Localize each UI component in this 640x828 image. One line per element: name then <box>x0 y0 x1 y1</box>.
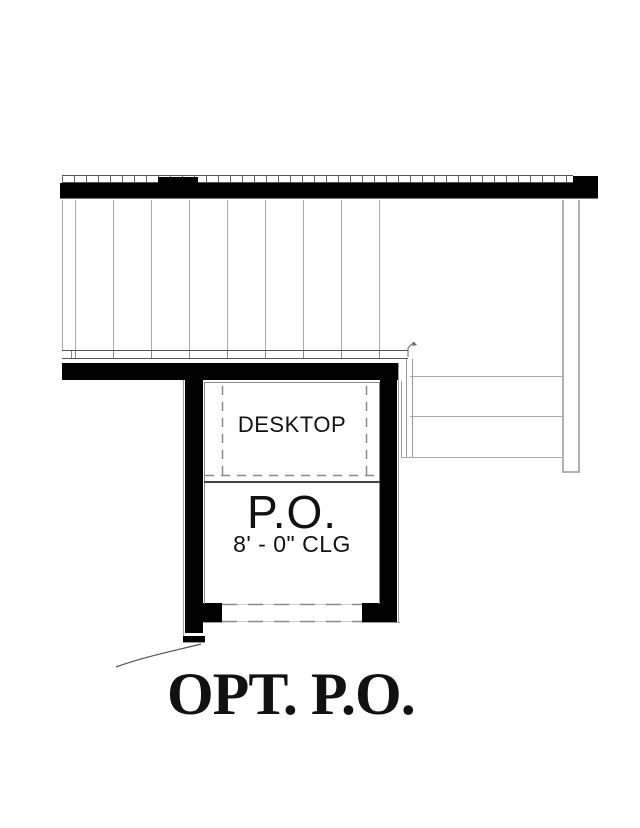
desk-counter-edge-line <box>204 481 380 483</box>
stair-stringer-line <box>406 359 407 457</box>
stair-stringer-line <box>412 359 413 457</box>
room-wall-left <box>185 363 203 633</box>
stair-side-wall-inner <box>562 200 564 473</box>
floor-plan-canvas: DESKTOP P.O. 8' - 0" CLG OPT. P.O. <box>0 0 640 828</box>
stair-tread-line <box>401 457 562 458</box>
room-wall-top <box>62 363 398 380</box>
room-wall-right-outline <box>398 363 399 622</box>
floor-joist-line <box>62 200 63 351</box>
room-label: P.O. <box>204 489 380 535</box>
door-jamb-stub-left <box>203 603 222 622</box>
top-wall-face-line <box>60 198 598 199</box>
stair-tread-line <box>410 376 562 377</box>
stair-side-wall-outer <box>578 200 580 473</box>
door-jamb-stub-left-line <box>203 622 222 623</box>
interior-face-top <box>204 382 380 383</box>
floor-joist-line <box>227 200 228 351</box>
siding-tick-band-top <box>62 175 573 183</box>
top-exterior-wall <box>60 183 598 198</box>
door-jamb-stub-right <box>362 603 397 622</box>
stair-stringer-line <box>401 381 402 457</box>
ceiling-height-label: 8' - 0" CLG <box>204 533 380 556</box>
opening-head-line <box>222 604 362 605</box>
room-wall-left-cap-line <box>183 642 205 643</box>
top-exterior-wall-right-end <box>573 176 598 198</box>
plan-caption: OPT. P.O. <box>167 664 415 724</box>
opening-sill-line <box>222 621 362 622</box>
floor-joist-line <box>75 200 76 351</box>
floor-joist-line <box>379 200 380 351</box>
floor-joist-line <box>151 200 152 351</box>
stair-tread-line <box>410 416 562 417</box>
room-wall-left-outline <box>183 363 184 642</box>
floor-joist-line <box>189 200 190 351</box>
stair-side-wall-cap <box>562 471 580 473</box>
room-wall-right <box>380 363 397 604</box>
corner-flag-icon <box>408 342 414 357</box>
siding-tick-band-lower <box>62 350 408 359</box>
floor-joist-line <box>303 200 304 351</box>
desktop-label: DESKTOP <box>204 414 380 436</box>
floor-joist-line <box>113 200 114 351</box>
corner-flag-tip-icon <box>412 342 417 346</box>
floor-joist-line <box>341 200 342 351</box>
door-jamb-stub-right-line <box>362 622 400 623</box>
floor-joist-line <box>265 200 266 351</box>
